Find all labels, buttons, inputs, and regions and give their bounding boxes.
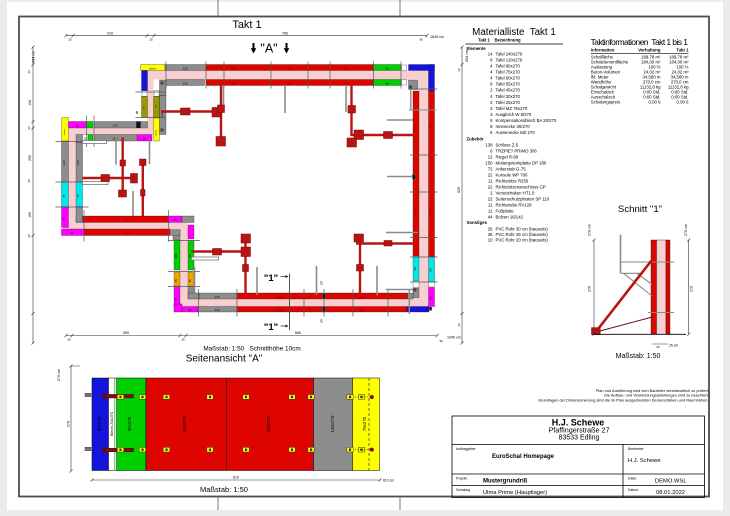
- svg-text:Sonstiges: Sonstiges: [467, 220, 488, 225]
- svg-text:55: 55: [174, 297, 178, 301]
- svg-text:120x270: 120x270: [330, 415, 335, 432]
- svg-text:Seitenschutzpfosten SP 110: Seitenschutzpfosten SP 110: [496, 196, 550, 201]
- svg-text:Takt 1: Takt 1: [478, 38, 490, 43]
- svg-text:26: 26: [27, 126, 31, 130]
- svg-text:Information: Information: [591, 48, 615, 53]
- svg-text:240: 240: [277, 308, 282, 312]
- svg-text:60: 60: [413, 267, 417, 271]
- svg-text:240: 240: [343, 81, 348, 85]
- svg-text:25: 25: [656, 345, 660, 349]
- svg-text:90: 90: [385, 66, 389, 70]
- svg-text:20: 20: [457, 323, 461, 327]
- svg-text:Elemente: Elemente: [467, 46, 487, 51]
- svg-text:Muttergelenkplatte DP 180: Muttergelenkplatte DP 180: [496, 160, 547, 165]
- svg-text:Schalung: Schalung: [456, 488, 470, 492]
- svg-text:Bezeichnung: Bezeichnung: [495, 38, 521, 43]
- svg-text:240: 240: [359, 295, 364, 299]
- svg-text:240: 240: [124, 231, 129, 235]
- svg-text:138: 138: [485, 142, 493, 147]
- svg-text:666: 666: [295, 331, 301, 335]
- svg-text:25 cm: 25 cm: [669, 344, 678, 348]
- svg-text:12: 12: [488, 154, 493, 159]
- svg-text:684 cm: 684 cm: [465, 50, 469, 61]
- svg-text:Richtstütze R250: Richtstütze R250: [496, 178, 529, 183]
- svg-text:Tafel 60x270: Tafel 60x270: [496, 76, 521, 81]
- svg-text:22: 22: [488, 184, 493, 189]
- svg-text:684 cm: 684 cm: [32, 51, 36, 62]
- svg-text:Ausgleich W 8/270: Ausgleich W 8/270: [496, 112, 532, 117]
- svg-text:Schnitt "1": Schnitt "1": [618, 204, 662, 215]
- svg-text:120: 120: [214, 295, 219, 299]
- svg-text:Umrex: Umrex: [149, 67, 157, 70]
- svg-text:240: 240: [277, 295, 282, 299]
- svg-text:Materialliste Takt 1: Materialliste Takt 1: [472, 27, 556, 38]
- svg-text:240: 240: [231, 66, 236, 70]
- svg-text:45: 45: [174, 279, 178, 283]
- svg-text:120: 120: [214, 308, 219, 312]
- svg-text:TRZPIE? PRIMO 306: TRZPIE? PRIMO 306: [496, 148, 538, 153]
- svg-text:Umrex: Umrex: [155, 129, 158, 136]
- svg-text:240: 240: [429, 125, 433, 130]
- svg-text:"A": "A": [260, 42, 277, 56]
- svg-text:08.01.2022: 08.01.2022: [656, 490, 685, 496]
- svg-text:240: 240: [287, 66, 292, 70]
- svg-text:36: 36: [27, 70, 31, 74]
- svg-text:90: 90: [385, 81, 389, 85]
- svg-text:810: 810: [233, 476, 239, 480]
- svg-text:240: 240: [343, 66, 348, 70]
- svg-text:Seitenansicht "A": Seitenansicht "A": [186, 354, 263, 365]
- svg-text:Schalungspreis: Schalungspreis: [591, 100, 620, 105]
- svg-text:0,00 €: 0,00 €: [649, 100, 662, 105]
- svg-text:134: 134: [28, 100, 32, 106]
- svg-text:1045 cm: 1045 cm: [447, 336, 461, 340]
- svg-text:75: 75: [62, 194, 66, 198]
- svg-text:Datum:: Datum:: [628, 488, 639, 492]
- svg-text:"1": "1": [264, 273, 278, 284]
- svg-text:25: 25: [149, 38, 153, 42]
- svg-text:195: 195: [28, 212, 32, 218]
- svg-text:300: 300: [123, 331, 129, 335]
- svg-text:55: 55: [143, 136, 147, 140]
- svg-text:270: 270: [690, 286, 694, 292]
- svg-text:240x270: 240x270: [182, 415, 187, 432]
- svg-text:120: 120: [62, 160, 66, 165]
- svg-text:22: 22: [488, 196, 493, 201]
- svg-text:Grundlagen der Dimensionierung: Grundlagen der Dimensionierung sind die …: [538, 397, 708, 402]
- svg-text:DEMO.WSL: DEMO.WSL: [655, 479, 687, 485]
- svg-text:Pfaffingerstraße 27: Pfaffingerstraße 27: [549, 425, 610, 434]
- svg-text:120: 120: [76, 160, 80, 165]
- svg-text:Versetzhaken HT1.0: Versetzhaken HT1.0: [496, 190, 536, 195]
- svg-text:75x270: 75x270: [362, 416, 367, 431]
- svg-text:270 cm: 270 cm: [57, 369, 61, 381]
- svg-text:11: 11: [488, 208, 493, 213]
- svg-text:90: 90: [174, 254, 178, 258]
- svg-text:"1": "1": [264, 322, 278, 333]
- svg-text:Datei:: Datei:: [628, 477, 637, 481]
- svg-text:Mustergrundriß: Mustergrundriß: [483, 479, 528, 485]
- svg-text:25: 25: [181, 338, 185, 342]
- svg-text:Aussenecke MZ 270: Aussenecke MZ 270: [496, 130, 536, 135]
- svg-text:240: 240: [287, 81, 292, 85]
- svg-text:0,00 €: 0,00 €: [677, 100, 690, 105]
- svg-text:240: 240: [359, 308, 364, 312]
- svg-text:PVC Rohr 26 cm (bauseits): PVC Rohr 26 cm (bauseits): [496, 232, 549, 237]
- svg-text:11: 11: [488, 178, 493, 183]
- svg-text:PVC Rohr 30 cm (bauseits): PVC Rohr 30 cm (bauseits): [496, 226, 549, 231]
- svg-text:36: 36: [488, 232, 493, 237]
- svg-text:14: 14: [488, 51, 493, 56]
- svg-text:Tafel MZ 75x270: Tafel MZ 75x270: [496, 106, 528, 111]
- svg-text:120: 120: [182, 66, 187, 70]
- svg-text:120: 120: [182, 81, 187, 85]
- svg-text:240: 240: [413, 125, 417, 130]
- svg-text:36: 36: [439, 339, 443, 343]
- svg-text:83533 Edling: 83533 Edling: [559, 435, 600, 442]
- svg-text:150: 150: [485, 160, 493, 165]
- svg-text:Bolzen 16/142: Bolzen 16/142: [496, 214, 524, 219]
- svg-text:270: 270: [66, 421, 70, 427]
- svg-text:Takt 1: Takt 1: [232, 19, 261, 31]
- svg-text:240: 240: [429, 210, 433, 215]
- svg-text:Richtstützenanschluss GP: Richtstützenanschluss GP: [496, 184, 546, 189]
- svg-text:Taktinformationen Takt 1 bis: Taktinformationen Takt 1 bis 1: [591, 37, 689, 47]
- svg-text:EuroSchal Homepage: EuroSchal Homepage: [492, 454, 555, 460]
- svg-text:25: 25: [27, 234, 31, 238]
- svg-text:Vorhaltung: Vorhaltung: [638, 48, 661, 53]
- svg-text:55: 55: [75, 123, 79, 127]
- svg-text:Tafel 55x270: Tafel 55x270: [496, 82, 521, 87]
- svg-text:Maßstab: 1:50: Maßstab: 1:50: [616, 353, 661, 360]
- svg-text:Blech 20x270: Blech 20x270: [109, 411, 114, 436]
- svg-text:55: 55: [62, 217, 66, 221]
- svg-text:75: 75: [76, 194, 80, 198]
- svg-text:25: 25: [67, 338, 71, 342]
- svg-text:270: 270: [588, 286, 592, 292]
- svg-text:25: 25: [68, 38, 72, 42]
- svg-text:Tafel 45x270: Tafel 45x270: [496, 88, 521, 93]
- svg-text:Innenecke 30/270: Innenecke 30/270: [496, 124, 531, 129]
- svg-text:629: 629: [457, 187, 461, 193]
- svg-text:Schloss Z-5: Schloss Z-5: [496, 142, 519, 147]
- svg-text:240: 240: [231, 81, 236, 85]
- svg-text:210: 210: [107, 31, 113, 35]
- svg-text:Ankerstab G-75: Ankerstab G-75: [496, 166, 527, 171]
- svg-text:10: 10: [488, 238, 493, 243]
- svg-text:240: 240: [123, 218, 128, 222]
- svg-text:Tafel 90x270: Tafel 90x270: [496, 63, 521, 68]
- svg-text:Richtstrebe RV128: Richtstrebe RV128: [496, 202, 533, 207]
- svg-text:44: 44: [488, 214, 493, 219]
- svg-text:Fußplatte: Fußplatte: [496, 208, 515, 213]
- svg-text:Zubehör: Zubehör: [467, 137, 485, 142]
- svg-text:90x270: 90x270: [97, 416, 102, 431]
- svg-text:110: 110: [113, 136, 118, 140]
- svg-text:Tafel 240x270: Tafel 240x270: [496, 51, 523, 56]
- svg-text:240: 240: [413, 210, 417, 215]
- svg-text:55: 55: [70, 231, 74, 235]
- svg-text:Ulma Prime (Hauptlager): Ulma Prime (Hauptlager): [483, 490, 547, 496]
- svg-text:Konsole WP 700: Konsole WP 700: [496, 172, 529, 177]
- svg-text:Projekt:: Projekt:: [456, 477, 468, 481]
- svg-text:Tafel 75x270: Tafel 75x270: [496, 70, 521, 75]
- svg-text:25: 25: [27, 179, 31, 183]
- svg-text:Maßstab: 1:50 Schnitthöhe 10: Maßstab: 1:50 Schnitthöhe 10cm: [203, 346, 300, 353]
- svg-text:Bearbeiter: Bearbeiter: [628, 447, 645, 451]
- svg-text:120: 120: [112, 123, 117, 127]
- svg-text:120: 120: [160, 112, 164, 117]
- svg-text:36: 36: [457, 68, 461, 72]
- svg-text:55: 55: [429, 296, 433, 300]
- svg-text:Takt 1: Takt 1: [676, 48, 689, 53]
- svg-text:Tafel 25x270: Tafel 25x270: [496, 100, 521, 105]
- svg-text:Tafel 30x270: Tafel 30x270: [496, 94, 521, 99]
- svg-text:45: 45: [188, 279, 192, 283]
- svg-text:36: 36: [419, 38, 423, 42]
- svg-text:760: 760: [282, 31, 288, 35]
- svg-text:240x270: 240x270: [266, 415, 271, 432]
- svg-text:Auftraggeber: Auftraggeber: [456, 447, 476, 451]
- svg-text:55: 55: [173, 218, 177, 222]
- svg-text:Kompensationsblech BA 20/270: Kompensationsblech BA 20/270: [496, 118, 558, 123]
- svg-text:Umrex: Umrex: [63, 128, 66, 135]
- svg-text:72: 72: [488, 166, 493, 171]
- svg-text:270 cm: 270 cm: [684, 224, 688, 236]
- svg-text:55: 55: [188, 308, 192, 312]
- svg-text:270 cm: 270 cm: [588, 224, 592, 236]
- svg-text:255: 255: [28, 155, 32, 161]
- svg-text:60: 60: [429, 268, 433, 272]
- svg-text:11: 11: [488, 202, 493, 207]
- svg-text:810 cm: 810 cm: [383, 479, 394, 483]
- svg-text:PVC Rohr 20 cm (bauseits): PVC Rohr 20 cm (bauseits): [496, 238, 549, 243]
- svg-text:26: 26: [488, 226, 493, 231]
- svg-text:Maßstab: 1:50: Maßstab: 1:50: [200, 485, 248, 494]
- svg-text:H.J. Schewe: H.J. Schewe: [628, 458, 661, 464]
- svg-text:90x270: 90x270: [127, 416, 132, 431]
- svg-text:1645 cm: 1645 cm: [430, 35, 444, 39]
- svg-text:22: 22: [488, 172, 493, 177]
- svg-text:Tafel 120x270: Tafel 120x270: [496, 57, 523, 62]
- svg-text:Riegel R-80: Riegel R-80: [496, 154, 519, 159]
